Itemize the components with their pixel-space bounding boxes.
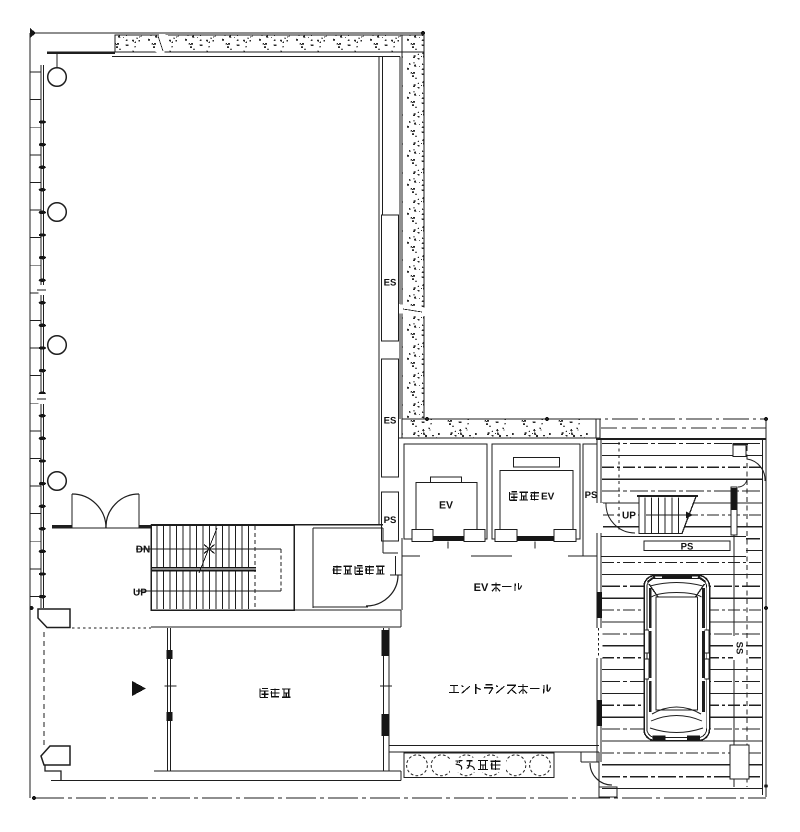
svg-text:ES: ES <box>384 416 397 427</box>
svg-text:UP: UP <box>133 588 147 599</box>
svg-text:EV: EV <box>541 492 555 503</box>
svg-text:PS: PS <box>585 490 598 501</box>
svg-text:UP: UP <box>622 510 636 521</box>
svg-text:ES: ES <box>384 278 397 289</box>
svg-text:DN: DN <box>136 545 150 556</box>
svg-text:PS: PS <box>681 542 694 553</box>
svg-text:EV: EV <box>439 500 453 512</box>
svg-text:EV: EV <box>474 582 489 594</box>
svg-text:PS: PS <box>384 515 397 526</box>
svg-text:SS: SS <box>734 642 745 655</box>
